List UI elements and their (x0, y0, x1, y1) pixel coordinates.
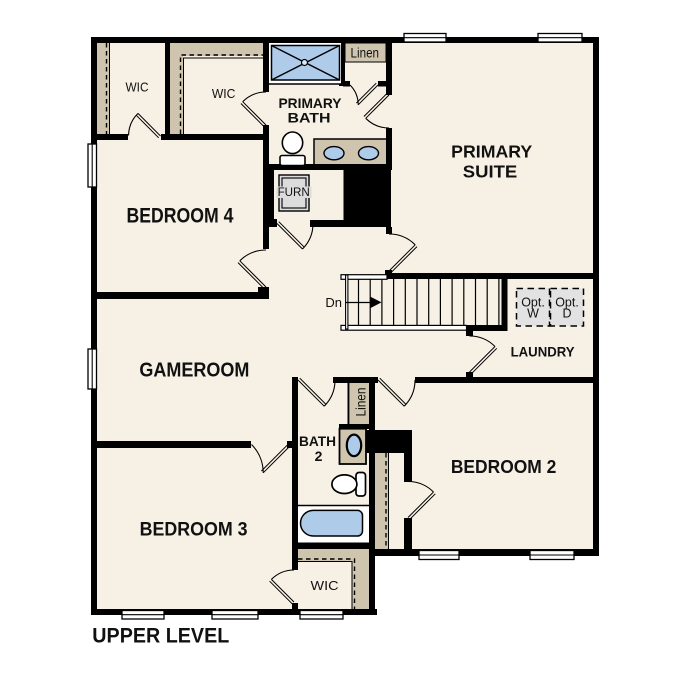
svg-text:Linen: Linen (354, 388, 369, 417)
svg-text:Linen: Linen (351, 44, 380, 60)
svg-text:WIC: WIC (126, 80, 149, 94)
svg-text:WIC: WIC (311, 579, 339, 593)
svg-text:BEDROOM 4: BEDROOM 4 (127, 204, 234, 228)
svg-text:GAMEROOM: GAMEROOM (139, 359, 249, 382)
svg-text:BATH: BATH (288, 110, 331, 126)
svg-text:Dn: Dn (325, 295, 342, 310)
svg-text:FURN: FURN (278, 187, 310, 199)
svg-text:BEDROOM 3: BEDROOM 3 (140, 520, 248, 541)
svg-text:2: 2 (315, 448, 323, 464)
svg-text:SUITE: SUITE (463, 161, 518, 181)
svg-text:W: W (527, 307, 539, 321)
svg-text:UPPER LEVEL: UPPER LEVEL (92, 625, 229, 648)
svg-text:PRIMARY: PRIMARY (451, 142, 532, 162)
svg-text:D: D (562, 307, 571, 321)
svg-text:BEDROOM 2: BEDROOM 2 (451, 457, 557, 477)
svg-text:BATH: BATH (299, 433, 336, 449)
svg-text:WIC: WIC (212, 87, 236, 101)
svg-text:LAUNDRY: LAUNDRY (511, 343, 576, 359)
